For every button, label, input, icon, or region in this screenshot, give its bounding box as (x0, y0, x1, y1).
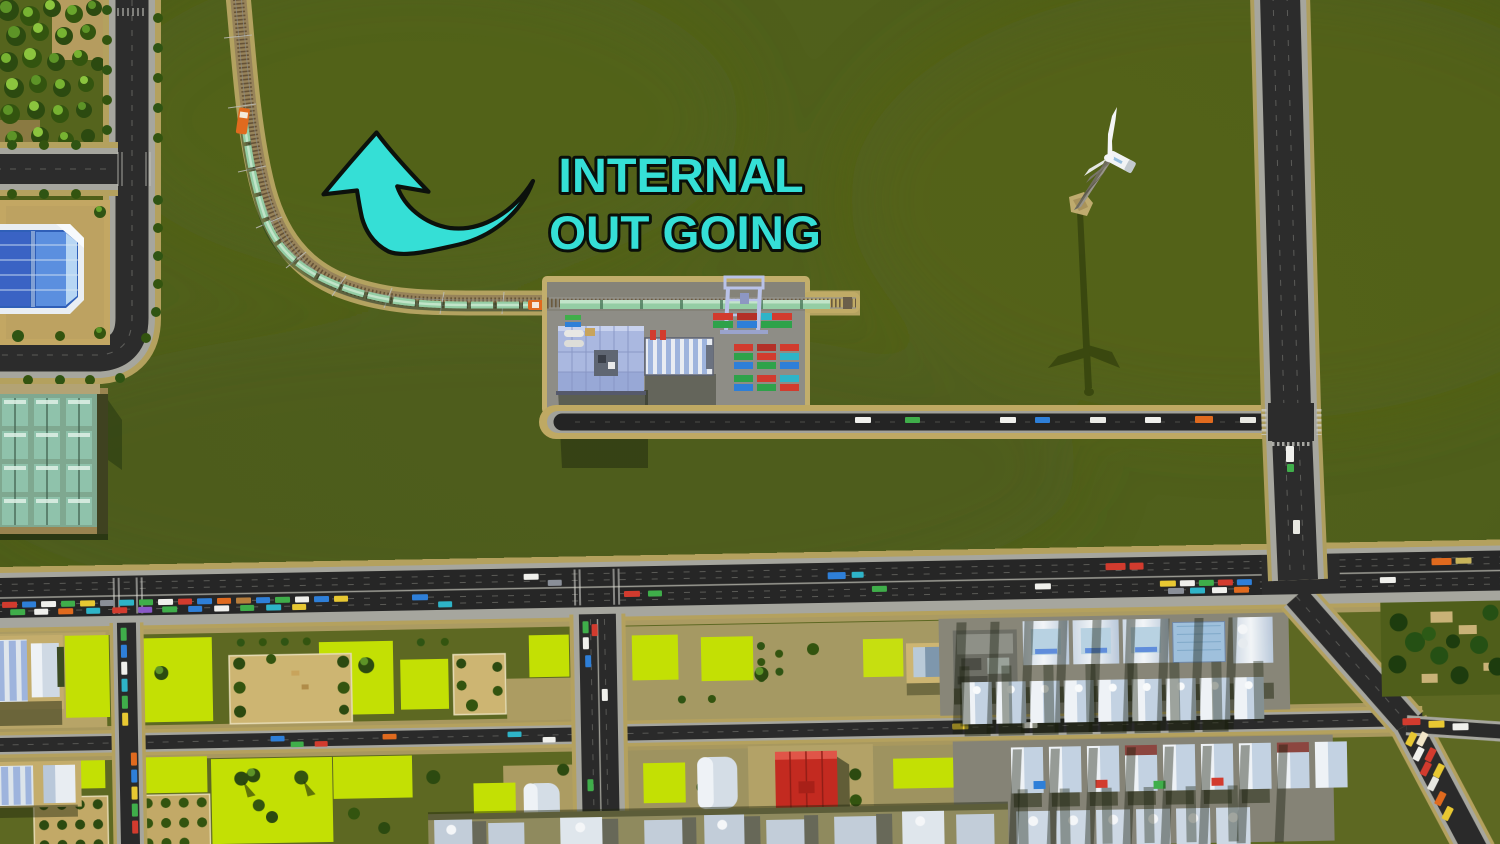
svg-text:OUT GOING: OUT GOING (549, 207, 821, 260)
svg-text:INTERNAL: INTERNAL (558, 149, 803, 203)
